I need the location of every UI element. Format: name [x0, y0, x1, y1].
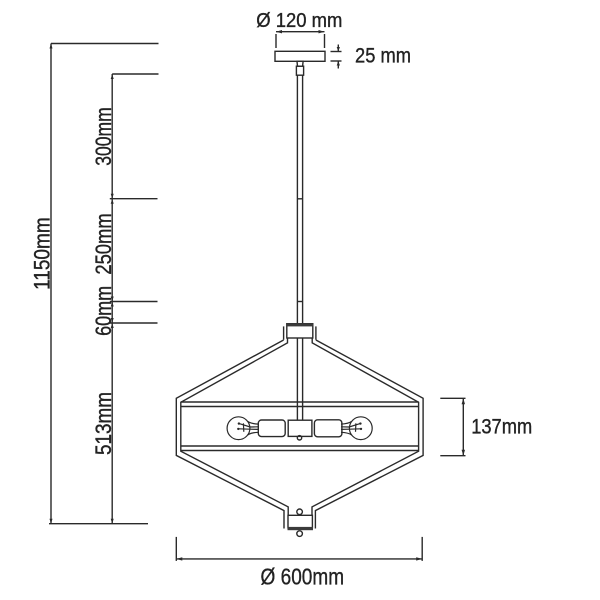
- svg-text:250mm: 250mm: [91, 213, 116, 274]
- svg-text:137mm: 137mm: [471, 415, 532, 438]
- svg-text:Ø 120 mm: Ø 120 mm: [256, 10, 342, 32]
- svg-text:25 mm: 25 mm: [355, 45, 411, 68]
- svg-text:300mm: 300mm: [91, 107, 116, 166]
- svg-text:Ø 600mm: Ø 600mm: [261, 564, 345, 590]
- svg-text:513mm: 513mm: [91, 392, 116, 455]
- svg-text:1150mm: 1150mm: [29, 217, 54, 290]
- svg-text:60mm: 60mm: [91, 286, 116, 336]
